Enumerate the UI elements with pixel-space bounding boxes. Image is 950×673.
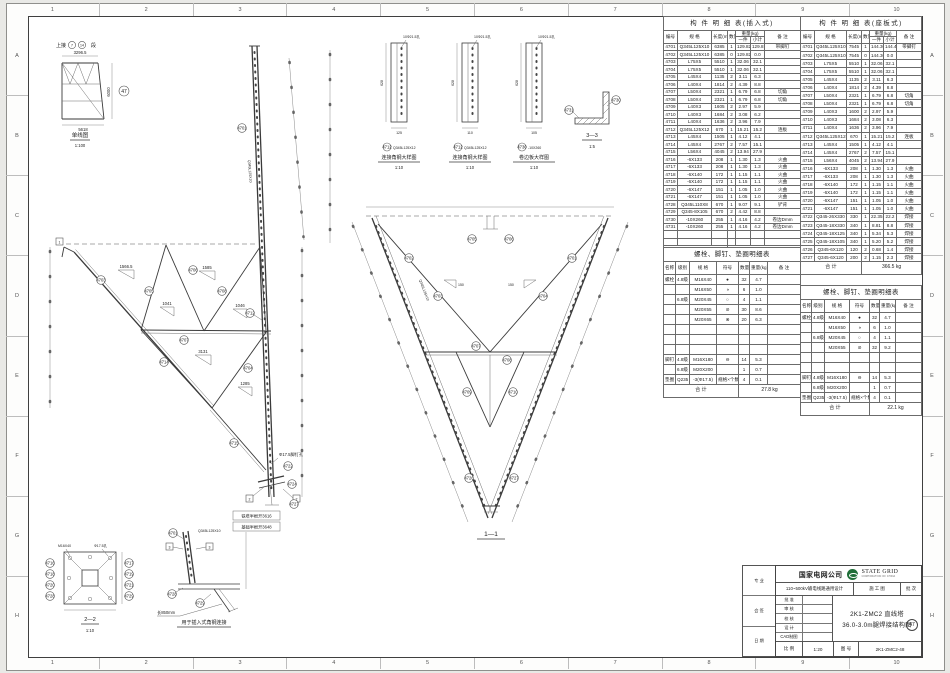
table-cell	[765, 73, 801, 81]
table-cell: 0.0	[884, 51, 897, 59]
table-cell	[801, 363, 812, 373]
table-row: 4713L45X4150514.124.1	[801, 140, 922, 148]
table-cell	[768, 365, 801, 375]
table-cell: M16X50	[825, 323, 850, 333]
table-cell: 2	[862, 124, 870, 132]
table-cell: ⊖	[717, 355, 739, 365]
total-label: 合 计	[801, 403, 870, 416]
svg-text:1:10: 1:10	[530, 165, 539, 170]
table-cell: 0.0	[751, 51, 765, 59]
svg-text:4704: 4704	[243, 366, 253, 371]
table-cell: 151	[847, 205, 862, 213]
table-cell: 2	[862, 116, 870, 124]
table-cell: 火曲	[765, 178, 801, 186]
svg-text:628: 628	[451, 80, 455, 86]
view-caption: 单线图	[72, 131, 89, 139]
table-cell: 卷边Dmm	[765, 216, 801, 224]
table-row: 4704L75X55510132.0632.1	[801, 67, 922, 75]
table-cell	[870, 353, 880, 363]
table-cell: 1	[728, 66, 736, 74]
table-row: 4711L40X4163623.967.9	[801, 124, 922, 132]
table-cell: 1505	[712, 133, 728, 141]
table-cell: 13.94	[870, 156, 884, 164]
table-cell: ◑	[717, 285, 739, 295]
table-cell: 1	[728, 156, 736, 164]
hole-note: 10Φ21.5孔	[538, 34, 555, 39]
table-cell: 2.97	[870, 108, 884, 116]
col-header: 规 格	[815, 31, 847, 44]
table-cell: M20X200	[690, 365, 717, 375]
table-cell: 6.79	[870, 100, 884, 108]
table-row: 4706L40X4181424.398.8	[801, 84, 922, 92]
table-cell: -3(Φ17.5)	[690, 375, 717, 385]
table-cell: 1.3	[751, 156, 765, 164]
table-cell: L40X4	[815, 124, 847, 132]
table-cell	[676, 325, 690, 335]
table-cell	[664, 335, 676, 345]
total-label: 合 计	[801, 262, 862, 275]
table-cell: 4.8级	[812, 373, 825, 383]
table-cell: 4729	[664, 208, 678, 216]
length-note: 长850mm	[157, 609, 176, 616]
table-row: 4730-10X26025514.164.2卷边Dmm	[664, 216, 801, 224]
svg-text:4728: 4728	[45, 594, 55, 599]
table-cell: 1	[728, 43, 736, 51]
angle-detail-strip-1: 628 10Φ21.5孔 125 4712 Q345L125X12 连接角钢大样…	[378, 34, 420, 170]
svg-text:1:10: 1:10	[395, 165, 404, 170]
svg-text:4703: 4703	[433, 294, 443, 299]
table-cell: 火曲	[897, 181, 922, 189]
approval-value	[803, 624, 832, 632]
table-cell: 4703	[801, 59, 815, 67]
table-cell: 1.05	[870, 205, 884, 213]
table-cell	[765, 66, 801, 74]
table-cell: 焊接	[897, 237, 922, 245]
svg-text:2: 2	[249, 498, 251, 502]
table-cell: 4706	[664, 81, 678, 89]
table-cell: 1.30	[870, 173, 884, 181]
table-cell	[897, 59, 922, 67]
svg-text:4720: 4720	[45, 583, 55, 588]
table-cell: 4720	[664, 186, 678, 194]
table-cell: ⊗	[717, 315, 739, 325]
svg-text:4727: 4727	[289, 502, 299, 507]
table-cell: L40X3	[815, 108, 847, 116]
table-cell: 垫圈	[664, 375, 676, 385]
table-cell: 4721	[801, 205, 815, 213]
svg-text:150: 150	[458, 283, 464, 287]
svg-text:4718: 4718	[45, 572, 55, 577]
table-cell: 火曲	[897, 205, 922, 213]
table-cell	[751, 238, 765, 246]
table-cell: 6.8级	[676, 295, 690, 305]
table-cell: 6.8	[751, 96, 765, 104]
table-row: 4727Q345-6X12020021.152.3焊接	[801, 254, 922, 262]
table-cell: 脚钉	[801, 373, 812, 383]
table-cell: 4.2	[751, 216, 765, 224]
company-name-en: STATE GRID CORPORATION OF CHINA	[862, 570, 899, 578]
table-cell: 670	[712, 208, 728, 216]
table-row: 6.8级M20X45○41.1	[664, 295, 801, 305]
table-cell	[897, 67, 922, 75]
section-ref: 47	[121, 89, 127, 95]
table-cell: 4709	[801, 108, 815, 116]
table-cell: 340	[847, 221, 862, 229]
table-cell: 144.36	[870, 43, 884, 51]
table-cell: 垫圈	[801, 393, 812, 403]
table-cell: L45X4	[678, 141, 712, 149]
table-cell: 1	[728, 96, 736, 104]
table-cell: 2	[728, 208, 736, 216]
svg-text:1566.5: 1566.5	[120, 264, 133, 269]
table-cell: 208	[847, 164, 862, 172]
table-cell: 4.42	[736, 208, 751, 216]
table-cell: 3.08	[736, 111, 751, 119]
table-cell: 连板	[897, 132, 922, 140]
svg-text:4701: 4701	[567, 256, 577, 261]
table-cell	[896, 363, 922, 373]
col-header: 备 注	[765, 31, 801, 44]
svg-text:1: 1	[59, 241, 61, 245]
table-cell: 3.11	[870, 75, 884, 83]
table-row: M20X55⊘329.2	[801, 343, 922, 353]
table-cell: 32	[870, 313, 880, 323]
table-cell: 4711	[801, 124, 815, 132]
table-cell: 9.2	[880, 343, 896, 353]
logo-subtext: CORPORATION OF CHINA	[862, 576, 899, 578]
svg-text:1585: 1585	[202, 265, 212, 270]
table-row: 4718-6X14017211.151.1火曲	[664, 171, 801, 179]
table-cell: 1.05	[736, 186, 751, 194]
batch-label: 批 次	[901, 583, 921, 595]
table-cell: 4727	[801, 254, 815, 262]
table-cell: 120	[847, 245, 862, 253]
col-header: 数量	[739, 262, 750, 275]
table-cell: 2	[862, 254, 870, 262]
svg-text:4729: 4729	[195, 601, 205, 606]
table-cell: 4702	[664, 51, 678, 59]
table-cell: ●	[850, 313, 870, 323]
table-cell: 4728	[664, 201, 678, 209]
table-cell	[897, 75, 922, 83]
table-cell: 4713	[664, 133, 678, 141]
table-cell	[896, 333, 922, 343]
table-cell: L56X4	[678, 148, 712, 156]
project-name: 110~500kV输电线路通用设计	[776, 583, 854, 595]
table-cell: 焊接	[897, 254, 922, 262]
table-row: 4710L40X3168423.086.2	[664, 111, 801, 119]
title-block: 国家电网公司 STATE GRID CORPORATION OF CHINA 1…	[775, 565, 922, 657]
svg-text:4729: 4729	[124, 594, 134, 599]
svg-text:105: 105	[531, 131, 537, 135]
table-cell: 6.79	[870, 92, 884, 100]
table-cell: 5.20	[870, 237, 884, 245]
table-cell: 2321	[847, 100, 862, 108]
table-cell	[739, 335, 750, 345]
col-header: 重量(kg)	[750, 262, 768, 275]
table-cell	[765, 111, 801, 119]
table-cell	[768, 355, 801, 365]
table-row: 4710L40X3168423.086.3	[801, 116, 922, 124]
table-cell	[739, 325, 750, 335]
table-cell: 670	[712, 126, 728, 134]
table-cell: 4715	[664, 148, 678, 156]
table-row: 4708L50X4232116.796.8切角	[664, 96, 801, 104]
table-cell	[768, 295, 801, 305]
table-cell: 208	[712, 156, 728, 164]
table-cell	[765, 103, 801, 111]
table-cell: 卷边Dmm	[765, 223, 801, 231]
table-cell	[765, 141, 801, 149]
table-cell: 8.8	[884, 221, 897, 229]
table-cell	[712, 238, 728, 246]
table-cell	[664, 231, 678, 239]
table-cell: 144.4	[884, 43, 897, 51]
table-cell: 1.0	[750, 285, 768, 295]
table-row: 垫圈Q235-3(Φ17.5)规格×个数40.1	[801, 393, 922, 403]
table-cell	[739, 345, 750, 355]
dim-label: 5618	[78, 127, 88, 132]
table-cell: L50X4	[678, 96, 712, 104]
table-cell	[690, 335, 717, 345]
table-row: 4711L40X4163623.967.9	[664, 118, 801, 126]
detail-caption: 用于插入式角钢连接	[181, 619, 226, 626]
table-cell	[717, 365, 739, 375]
drawing-title: 2K1-ZMC2 直线塔 36.0-3.0m腿焊接结构图 47	[833, 596, 921, 641]
table-cell: 1.0	[884, 197, 897, 205]
svg-text:4731: 4731	[564, 108, 574, 113]
table-title: 构 件 明 细 表(座板式)	[801, 17, 922, 31]
section-caption: 2—2	[84, 617, 96, 623]
approval-label: CAD制图	[776, 633, 803, 641]
table-cell: 1	[739, 365, 750, 375]
table-cell: 1684	[847, 116, 862, 124]
table-cell: 6.8级	[812, 383, 825, 393]
table-cell: 6	[739, 285, 750, 295]
table-cell: 1.15	[870, 181, 884, 189]
table-cell: Q345-8X105	[678, 208, 712, 216]
table-cell	[897, 156, 922, 164]
col-header: 编号	[664, 31, 678, 44]
table-cell: 6.79	[736, 88, 751, 96]
table-cell: 4714	[664, 141, 678, 149]
table-cell: 1135	[847, 75, 862, 83]
table-cell	[768, 375, 801, 385]
svg-text:14: 14	[80, 43, 84, 47]
table-cell	[870, 363, 880, 373]
table-cell: 151	[847, 197, 862, 205]
table-cell: 脚钉	[664, 355, 676, 365]
table-cell	[690, 325, 717, 335]
table-cell: 4704	[664, 66, 678, 74]
table-cell: 0.1	[880, 393, 896, 403]
table-cell: L40X3	[815, 116, 847, 124]
table-cell: 22.35	[870, 213, 884, 221]
svg-text:4707: 4707	[471, 344, 481, 349]
angle-detail-strip-3: 628 10Φ21.5孔 105 4730 -10X260 卷边板大样图 1:1…	[513, 34, 555, 170]
angle-detail-strip-2: 628 10Φ21.5孔 110 4712 Q345L125X12 连接角钢大样…	[449, 34, 491, 170]
table-row: 垫圈Q235-3(Φ17.5)规格×个数40.1	[664, 375, 801, 385]
svg-text:Q345L125X10: Q345L125X10	[198, 529, 221, 533]
table-cell: L50X4	[815, 100, 847, 108]
table-cell: 4707	[801, 92, 815, 100]
table-cell: 32.1	[751, 66, 765, 74]
table-row: 脚钉4.8级M16X180⊖145.3	[801, 373, 922, 383]
table-cell: 4.1	[751, 133, 765, 141]
table-cell: 连板	[765, 126, 801, 134]
table-cell: 1.3	[884, 164, 897, 172]
table-cell: 4706	[801, 84, 815, 92]
table-cell: -6X147	[678, 193, 712, 201]
table-cell: 3.11	[736, 73, 751, 81]
col-header: 备 注	[896, 300, 922, 313]
svg-text:3: 3	[169, 546, 171, 550]
table-cell: 1	[728, 88, 736, 96]
table-cell: 32	[739, 275, 750, 285]
table-cell: L75X5	[678, 58, 712, 66]
col-header: 编号	[801, 31, 815, 44]
table-cell: 2	[862, 156, 870, 164]
svg-text:4709: 4709	[462, 390, 472, 395]
table-cell: 4.39	[870, 84, 884, 92]
table-cell: 4716	[801, 164, 815, 172]
table-cell: 4.12	[870, 140, 884, 148]
table-cell	[676, 285, 690, 295]
table-row: 4723Q345-18X33034018.818.8焊接	[801, 221, 922, 229]
table-cell: 4730	[664, 216, 678, 224]
table-cell: L75X5	[815, 59, 847, 67]
table-cell	[750, 335, 768, 345]
table-row: 脚钉4.8级M16X180⊖145.3	[664, 355, 801, 365]
table-cell: -6X133	[678, 163, 712, 171]
table-cell: 6.8	[751, 88, 765, 96]
table-cell: 铲背	[765, 201, 801, 209]
table-cell	[736, 238, 751, 246]
table-cell: 规格×个数	[717, 375, 739, 385]
approval-value	[803, 633, 832, 641]
table-row: M16X50◑61.0	[801, 323, 922, 333]
half-root-note: 铁塔半根开3616	[241, 513, 272, 520]
table-cell: 6.3	[751, 73, 765, 81]
table-cell: 1814	[712, 81, 728, 89]
svg-text:Q345L125X10: Q345L125X10	[418, 279, 430, 302]
drawing-title-line2: 36.0-3.0m腿焊接结构图	[842, 620, 911, 629]
table-cell: M20X65	[690, 315, 717, 325]
table-cell: 4	[870, 393, 880, 403]
svg-text:4708: 4708	[217, 289, 227, 294]
table-cell: 4731	[664, 223, 678, 231]
table-row: 4715L56X44045213.9427.9	[664, 148, 801, 156]
signature-strip: 专 业会 签日 期	[742, 565, 775, 657]
table-cell: 22.2	[884, 213, 897, 221]
table-cell: 32.1	[751, 58, 765, 66]
table-row	[664, 238, 801, 246]
svg-text:4715: 4715	[229, 441, 239, 446]
table-cell: 6.2	[751, 111, 765, 119]
col-header: 名称	[801, 300, 812, 313]
table-cell: 255	[712, 216, 728, 224]
svg-text:4706: 4706	[504, 237, 514, 242]
table-cell	[765, 51, 801, 59]
table-cell: 4701	[801, 43, 815, 51]
table-cell: -6X133	[678, 156, 712, 164]
table-row: 4707L50X4232116.796.8切角	[801, 92, 922, 100]
table-cell	[812, 343, 825, 353]
svg-text:4708: 4708	[502, 358, 512, 363]
svg-text:4707: 4707	[179, 338, 189, 343]
table-row: 4702Q345L125X1075450144.360.0	[801, 51, 922, 59]
title-block-company-row: 国家电网公司 STATE GRID CORPORATION OF CHINA	[776, 566, 921, 583]
table-cell	[801, 333, 812, 343]
table-cell: 0.1	[750, 375, 768, 385]
table-row: 4701Q345L125X1075451144.36144.4带脚钉	[801, 43, 922, 51]
table-cell	[768, 285, 801, 295]
table-cell: 15.21	[736, 126, 751, 134]
table-cell: 4718	[664, 171, 678, 179]
table-cell: 1	[728, 171, 736, 179]
table-row: 4709L40X3160522.975.9	[664, 103, 801, 111]
table-cell	[717, 335, 739, 345]
table-cell: M16X180	[825, 373, 850, 383]
svg-text:Q345L125X10: Q345L125X10	[247, 160, 253, 183]
table-cell	[728, 238, 736, 246]
table-cell	[765, 133, 801, 141]
table-cell	[896, 383, 922, 393]
table-cell: 2	[862, 84, 870, 92]
table-cell	[765, 118, 801, 126]
table-cell: 5510	[712, 58, 728, 66]
table-row: 4717-6X13320811.301.3火曲	[664, 163, 801, 171]
table-cell	[812, 363, 825, 373]
table-row: 4713L45X4150514.124.1	[664, 133, 801, 141]
table-cell: 1.15	[736, 178, 751, 186]
table-row: 6.8级M20X45○41.1	[801, 333, 922, 343]
svg-text:4714: 4714	[159, 360, 169, 365]
table-cell	[896, 373, 922, 383]
table-cell	[664, 365, 676, 375]
hole-note: 10Φ21.5孔	[474, 34, 491, 39]
table-cell: 8.8	[751, 208, 765, 216]
table-cell: 7.57	[736, 141, 751, 149]
table-cell: 7545	[847, 43, 862, 51]
col-header: 规 格	[825, 300, 850, 313]
table-cell: 208	[712, 163, 728, 171]
parts-table-insert: 构 件 明 细 表(插入式) 编号 规 格 长度(mm) 数量 重量(kg) 备…	[663, 16, 801, 259]
title-block-bottom-row: 比 例 1:20 图 号 2K1-ZMC2-48	[776, 641, 921, 656]
table-cell: 2	[728, 141, 736, 149]
table-cell: 2	[728, 148, 736, 156]
svg-text:1046: 1046	[235, 303, 245, 308]
table-row: 4721-6X14715111.051.0火曲	[664, 193, 801, 201]
table-cell	[768, 335, 801, 345]
table-cell: ●	[717, 275, 739, 285]
table-cell: L56X4	[815, 156, 847, 164]
table-cell: ⊖	[850, 373, 870, 383]
table-cell	[897, 51, 922, 59]
table-cell: 5.3	[750, 355, 768, 365]
table-cell: 焊接	[897, 245, 922, 253]
table-cell: 5510	[847, 67, 862, 75]
table-cell: 7.9	[751, 118, 765, 126]
table-cell	[676, 335, 690, 345]
col-header: 符号	[717, 262, 739, 275]
approval-label: 批 准	[776, 596, 803, 604]
table-cell: Q345L125X10	[815, 51, 847, 59]
insert-connection-detail: 4701 Q345L125X10 3 3 4728 4729 长850mm 用于…	[157, 529, 246, 627]
table-row: 螺栓4.8级M16X40●324.7	[801, 313, 922, 323]
col-header: 规 格	[690, 262, 717, 275]
table-cell	[678, 231, 712, 239]
